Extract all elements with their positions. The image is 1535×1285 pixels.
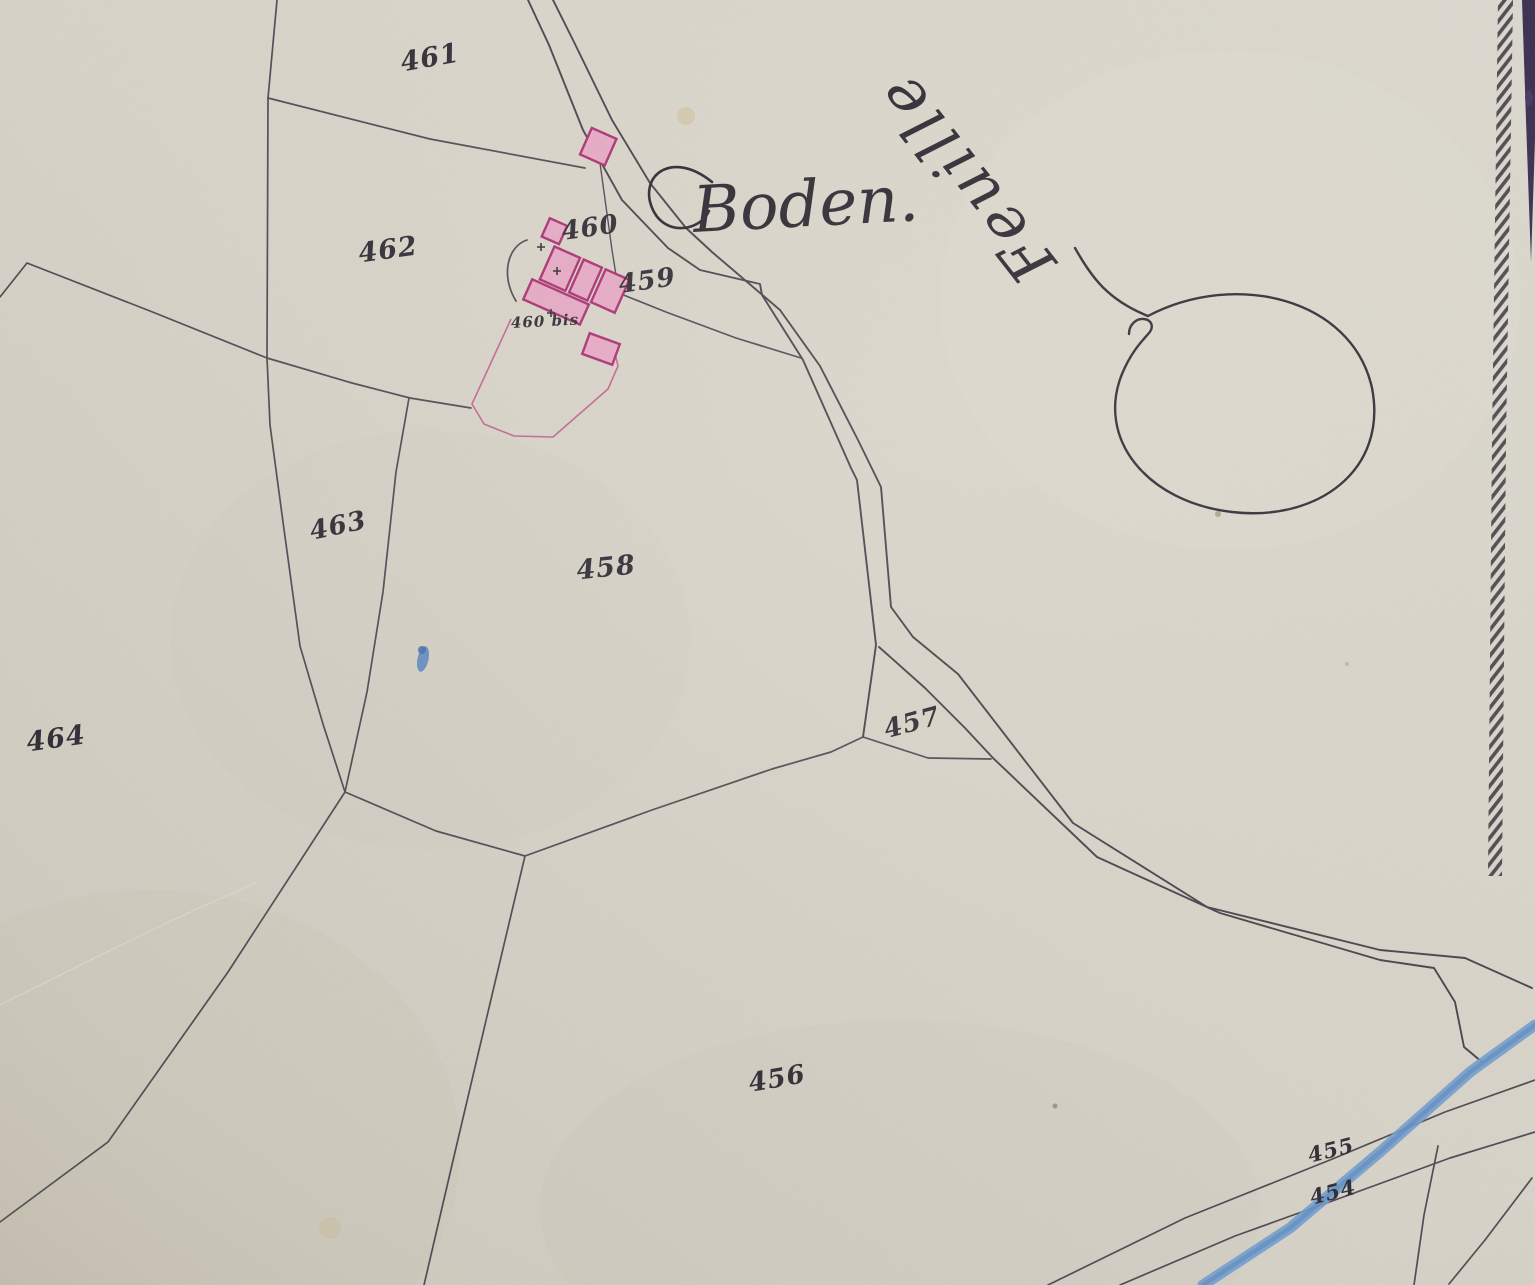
cadastral-map-sheet: 461 462 463 464 460 460 bis 459 458 457 … <box>0 0 1535 1285</box>
scanned-cadastral-map: 461 462 463 464 460 460 bis 459 458 457 … <box>0 0 1535 1285</box>
vignette-overlay <box>0 0 1535 1285</box>
